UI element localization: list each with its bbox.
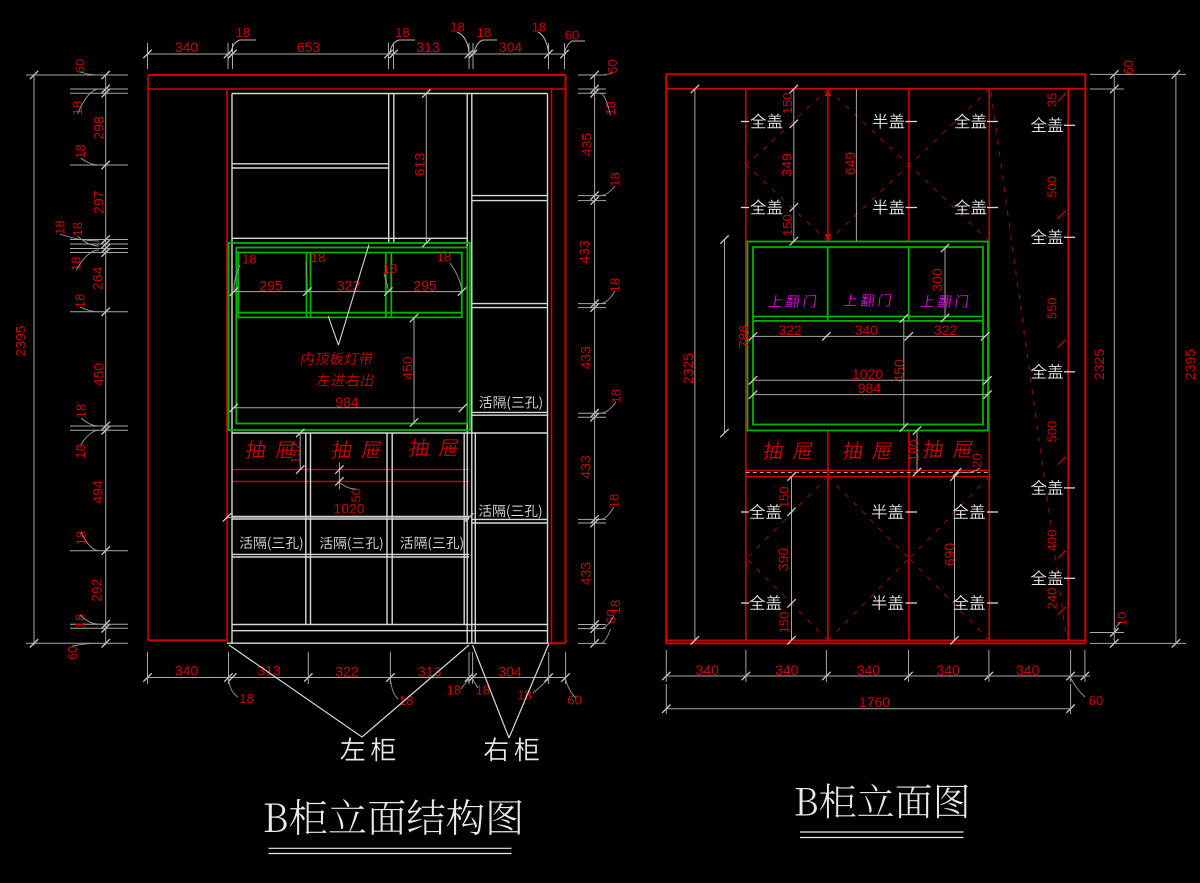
svg-text:984: 984 — [858, 380, 882, 396]
svg-text:500: 500 — [1045, 421, 1060, 443]
svg-text:60: 60 — [605, 59, 620, 73]
svg-text:340: 340 — [855, 322, 879, 338]
svg-text:60: 60 — [1089, 693, 1103, 708]
svg-text:340: 340 — [936, 662, 960, 678]
svg-text:35: 35 — [1045, 93, 1060, 107]
svg-text:18: 18 — [70, 222, 85, 236]
svg-text:18: 18 — [242, 252, 256, 267]
svg-text:18: 18 — [73, 144, 88, 158]
svg-text:390: 390 — [775, 548, 791, 572]
svg-text:18: 18 — [69, 257, 84, 271]
svg-text:433: 433 — [578, 346, 594, 370]
svg-text:340: 340 — [696, 662, 720, 678]
svg-text:340: 340 — [775, 662, 799, 678]
svg-text:2325: 2325 — [1091, 349, 1107, 380]
svg-text:10: 10 — [1115, 612, 1130, 626]
svg-text:433: 433 — [576, 240, 592, 264]
svg-text:298: 298 — [91, 116, 107, 140]
svg-text:300: 300 — [929, 268, 945, 292]
svg-text:150: 150 — [780, 214, 795, 236]
svg-text:18: 18 — [74, 404, 89, 418]
svg-text:295: 295 — [413, 277, 437, 293]
svg-text:18: 18 — [73, 614, 88, 628]
svg-text:340: 340 — [175, 662, 199, 678]
svg-text:60: 60 — [73, 59, 88, 73]
svg-text:18: 18 — [608, 172, 623, 186]
svg-text:313: 313 — [416, 39, 440, 55]
svg-text:295: 295 — [259, 277, 283, 293]
svg-text:690: 690 — [942, 543, 958, 567]
svg-text:322: 322 — [335, 663, 359, 679]
svg-text:60: 60 — [567, 693, 581, 708]
svg-text:18: 18 — [239, 691, 253, 706]
svg-text:60: 60 — [65, 646, 80, 660]
svg-text:18: 18 — [447, 683, 461, 698]
svg-text:494: 494 — [89, 480, 105, 504]
svg-text:550: 550 — [1045, 298, 1060, 320]
svg-text:2395: 2395 — [13, 325, 29, 356]
svg-text:304: 304 — [499, 39, 523, 55]
svg-text:984: 984 — [335, 394, 359, 410]
svg-text:18: 18 — [608, 278, 623, 292]
svg-text:60: 60 — [1121, 60, 1136, 74]
svg-text:60: 60 — [565, 28, 579, 43]
svg-text:433: 433 — [578, 455, 594, 479]
svg-text:786: 786 — [736, 325, 752, 349]
svg-text:18: 18 — [477, 25, 491, 40]
svg-text:500: 500 — [1045, 176, 1060, 198]
svg-text:18: 18 — [311, 250, 325, 265]
svg-text:297: 297 — [91, 190, 107, 214]
svg-text:18: 18 — [73, 444, 88, 458]
svg-text:50: 50 — [349, 488, 364, 502]
svg-text:433: 433 — [578, 562, 594, 586]
svg-text:150: 150 — [777, 486, 792, 508]
svg-text:613: 613 — [412, 153, 428, 177]
svg-text:180: 180 — [907, 440, 922, 462]
svg-text:450: 450 — [90, 363, 106, 387]
svg-text:18: 18 — [52, 220, 67, 234]
svg-text:653: 653 — [297, 39, 321, 55]
svg-text:2395: 2395 — [1182, 349, 1198, 380]
svg-text:400: 400 — [1045, 530, 1060, 552]
svg-text:18: 18 — [72, 294, 87, 308]
svg-text:292: 292 — [89, 578, 105, 602]
svg-text:435: 435 — [579, 133, 595, 157]
svg-text:18: 18 — [236, 25, 250, 40]
svg-text:340: 340 — [175, 39, 199, 55]
svg-text:18: 18 — [606, 494, 621, 508]
svg-text:18: 18 — [395, 25, 409, 40]
svg-text:340: 340 — [857, 662, 881, 678]
svg-text:18: 18 — [383, 261, 397, 276]
svg-text:450: 450 — [891, 359, 907, 383]
svg-text:2325: 2325 — [680, 353, 696, 384]
svg-text:18: 18 — [609, 389, 624, 403]
svg-text:304: 304 — [498, 663, 522, 679]
svg-text:60: 60 — [604, 609, 619, 623]
svg-text:240: 240 — [1045, 588, 1060, 610]
svg-text:649: 649 — [842, 152, 858, 176]
svg-text:1760: 1760 — [859, 694, 890, 710]
svg-text:322: 322 — [778, 322, 802, 338]
svg-text:20: 20 — [970, 453, 985, 467]
svg-text:150: 150 — [777, 612, 792, 634]
svg-text:18: 18 — [74, 531, 89, 545]
svg-text:340: 340 — [1016, 662, 1040, 678]
svg-text:150: 150 — [780, 92, 795, 114]
svg-text:18: 18 — [437, 250, 451, 265]
svg-text:349: 349 — [779, 153, 795, 177]
svg-text:264: 264 — [90, 266, 106, 290]
svg-text:450: 450 — [400, 356, 416, 380]
svg-text:313: 313 — [257, 662, 281, 678]
svg-text:322: 322 — [934, 322, 958, 338]
